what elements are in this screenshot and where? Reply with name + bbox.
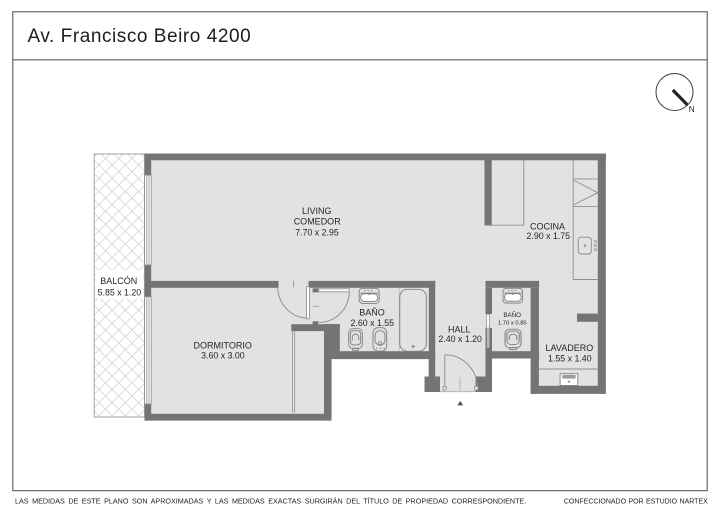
svg-text:BAÑO: BAÑO — [503, 312, 521, 319]
svg-text:CONFECCIONADO POR ESTUDIO NART: CONFECCIONADO POR ESTUDIO NARTEX — [564, 499, 708, 506]
svg-text:LAS MEDIDAS DE ESTE PLANO SON: LAS MEDIDAS DE ESTE PLANO SON APROXIMADA… — [15, 497, 526, 506]
svg-text:BAÑO: BAÑO — [359, 307, 385, 317]
svg-text:1.55 x 1.40: 1.55 x 1.40 — [548, 354, 592, 364]
svg-text:Av. Francisco Beiro 4200: Av. Francisco Beiro 4200 — [28, 26, 252, 47]
svg-text:3.60 x 3.00: 3.60 x 3.00 — [201, 350, 245, 360]
svg-text:LAVADERO: LAVADERO — [546, 343, 594, 353]
svg-text:COCINA: COCINA — [530, 222, 565, 232]
svg-text:2.60 x 1.55: 2.60 x 1.55 — [351, 318, 395, 328]
svg-text:N: N — [689, 105, 695, 114]
svg-text:1.70 x 0.85: 1.70 x 0.85 — [498, 321, 527, 327]
svg-text:7.70 x 2.95: 7.70 x 2.95 — [295, 227, 339, 237]
svg-text:BALCÓN: BALCÓN — [100, 276, 137, 286]
svg-text:2.90 x 1.75: 2.90 x 1.75 — [527, 231, 571, 241]
svg-text:2.40 x 1.20: 2.40 x 1.20 — [438, 334, 482, 344]
svg-text:DORMITORIO: DORMITORIO — [194, 341, 252, 351]
svg-text:COMEDOR: COMEDOR — [294, 217, 342, 227]
svg-text:LIVING: LIVING — [302, 206, 332, 216]
svg-text:HALL: HALL — [448, 325, 471, 335]
svg-text:5.85 x 1.20: 5.85 x 1.20 — [98, 288, 142, 298]
